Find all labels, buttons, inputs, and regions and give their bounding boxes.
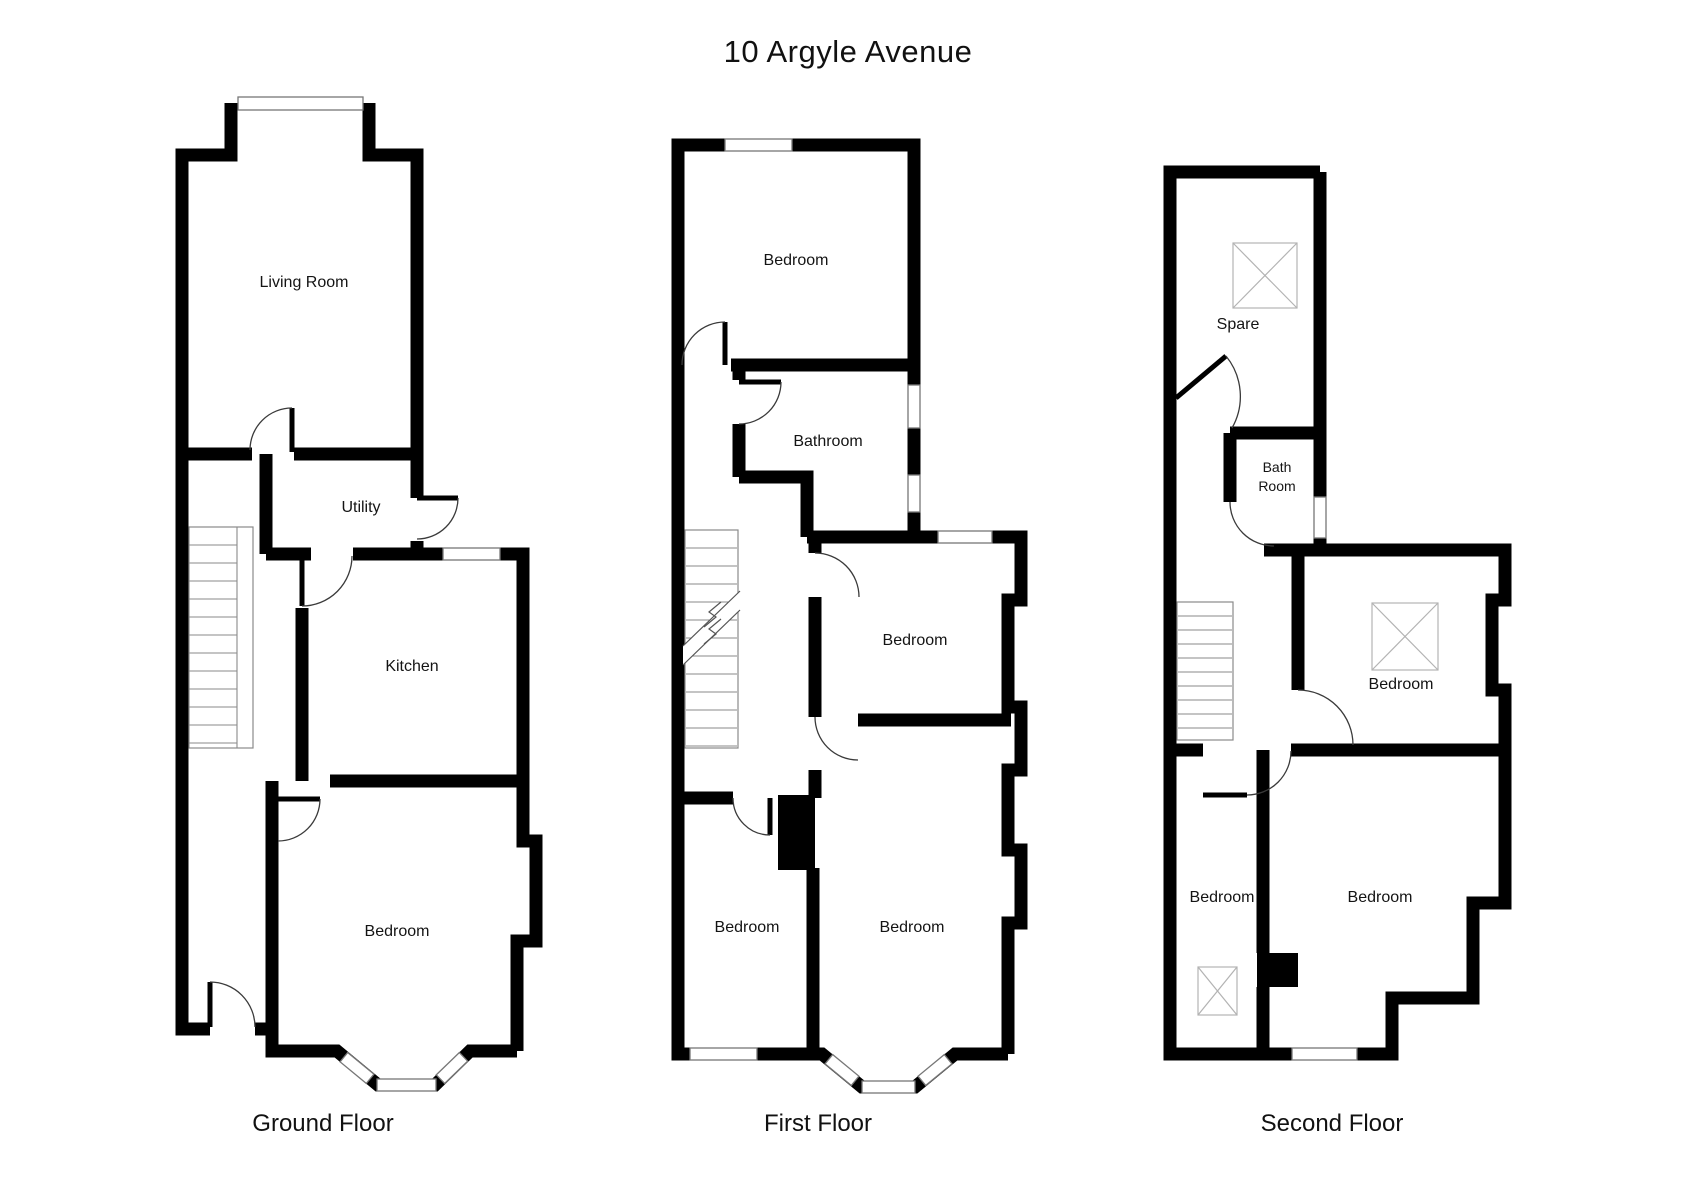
door-arc — [682, 322, 725, 365]
floorplan-page: 10 Argyle Avenue — [0, 0, 1696, 1200]
room-label-spare: Spare — [1217, 316, 1260, 333]
door-arc — [739, 382, 781, 424]
floor-label-ground: Ground Floor — [252, 1110, 393, 1138]
ground-floor-plan: Living Room Utility Kitchen Bedroom — [170, 88, 550, 1098]
door-arc — [302, 556, 352, 606]
front-door-arc — [210, 982, 255, 1027]
window — [908, 385, 920, 428]
window — [908, 475, 920, 512]
window — [1314, 497, 1326, 538]
door-arc — [250, 408, 292, 450]
room-label-bedroom-back-right: Bedroom — [1348, 889, 1413, 906]
window — [443, 548, 500, 560]
rooflight-icon — [1372, 603, 1438, 670]
door-leaf — [1176, 356, 1226, 398]
door-arc — [1298, 690, 1353, 745]
window — [862, 1081, 915, 1093]
window — [938, 531, 992, 543]
room-label-bedroom-back-left: Bedroom — [1190, 889, 1255, 906]
room-label-kitchen: Kitchen — [385, 658, 438, 675]
floor-label-first: First Floor — [764, 1110, 872, 1138]
staircase — [683, 530, 740, 748]
room-label-bathroom: Bathroom — [793, 433, 862, 450]
window — [340, 1053, 374, 1084]
window — [918, 1055, 952, 1086]
door-arc — [417, 498, 458, 539]
window — [436, 1053, 467, 1084]
window — [238, 97, 363, 110]
chimney-breast — [1257, 953, 1298, 987]
room-label-bedroom-middle: Bedroom — [1369, 676, 1434, 693]
staircase — [189, 527, 253, 748]
door-arc — [1226, 356, 1240, 428]
rooflight-icon — [1198, 967, 1237, 1015]
rooflight-icon — [1233, 243, 1297, 308]
room-label-utility: Utility — [341, 499, 380, 516]
window — [690, 1048, 757, 1060]
first-floor-plan: Bedroom Bathroom Bedroom Bedroom Bedroom — [665, 130, 1040, 1105]
room-label-bedroom-back-right: Bedroom — [880, 919, 945, 936]
window — [1292, 1048, 1357, 1060]
room-label-living-room: Living Room — [260, 274, 349, 291]
door-arc — [733, 798, 770, 835]
second-floor-plan: Spare Bath Room Bedroom Bedroom Bedroom — [1160, 160, 1525, 1065]
room-label-bedroom-middle: Bedroom — [883, 632, 948, 649]
door-arc — [815, 717, 858, 760]
room-label-bedroom-back-left: Bedroom — [715, 919, 780, 936]
door-arc — [1230, 502, 1274, 546]
room-label-bedroom-ground: Bedroom — [365, 923, 430, 940]
room-label-bath-line2: Room — [1258, 478, 1295, 494]
staircase — [1177, 602, 1233, 740]
page-title: 10 Argyle Avenue — [0, 34, 1696, 70]
window — [725, 139, 792, 151]
chimney-breast — [778, 795, 815, 870]
window — [825, 1055, 859, 1086]
room-label-bedroom-front: Bedroom — [764, 252, 829, 269]
floor-label-second: Second Floor — [1261, 1110, 1404, 1138]
room-label-bath-line1: Bath — [1263, 459, 1292, 475]
door-arc — [278, 799, 320, 841]
window — [377, 1079, 436, 1091]
door-arc — [815, 553, 859, 597]
